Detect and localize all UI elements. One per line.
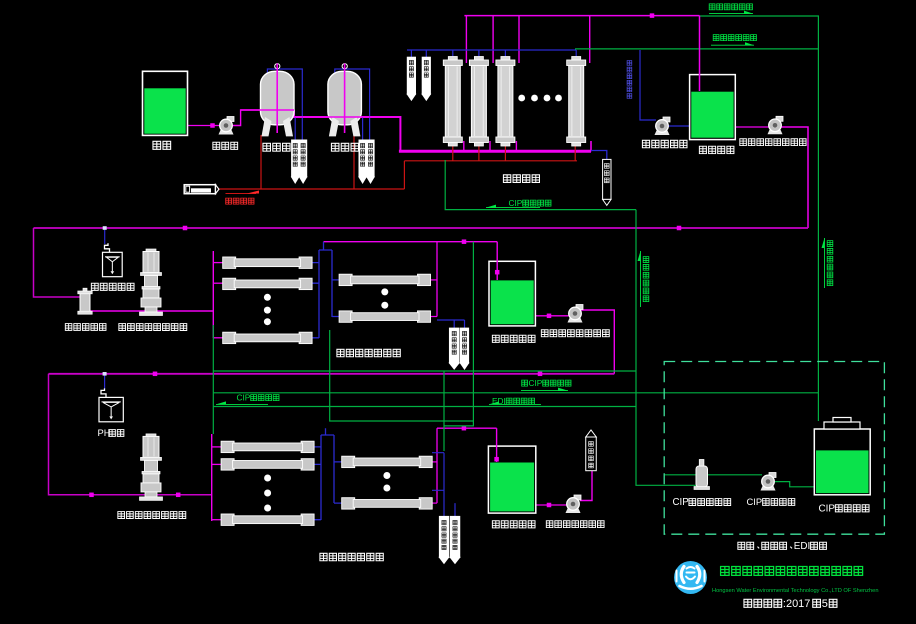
svg-text:CIP: CIP — [509, 198, 523, 208]
svg-text::2017: :2017 — [783, 598, 811, 610]
svg-text:CIP: CIP — [237, 392, 251, 402]
svg-text:5: 5 — [822, 598, 828, 610]
svg-text:CIP: CIP — [529, 378, 543, 388]
svg-text:EDI: EDI — [794, 541, 810, 552]
svg-text:CIP: CIP — [673, 497, 689, 508]
svg-text:CIP: CIP — [747, 496, 763, 507]
svg-text:CIP: CIP — [819, 504, 836, 515]
svg-text:Hongsen Water Environmental: Hongsen Water Environmental Technology C… — [712, 588, 879, 594]
